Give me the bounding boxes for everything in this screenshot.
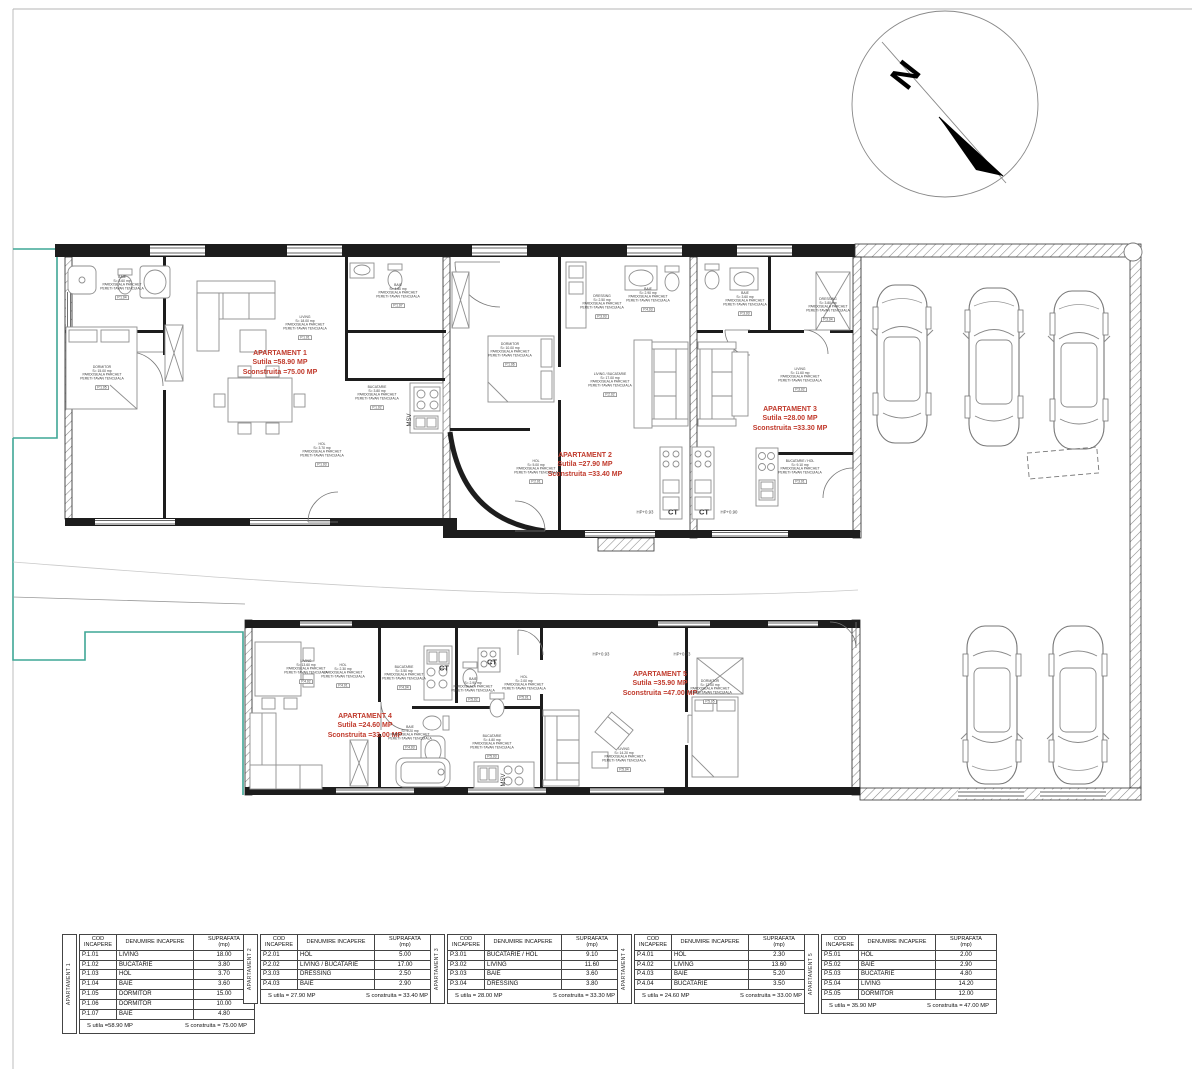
cell-cod: P.5.03 — [822, 970, 859, 980]
cell-denumire: BUCATARIE / HOL — [485, 950, 562, 960]
cell-denumire: LIVING — [672, 960, 749, 970]
cell-suprafata: 2.30 — [749, 950, 810, 960]
room-finish: PERETI-TAVAN TENCUIALA — [804, 309, 851, 313]
room-annotation: BAIES= 5.20 mpPARDOSEALA PARCHETPERETI-T… — [386, 726, 433, 750]
col-header-suprafata: SUPRAFATA(mp) — [562, 935, 623, 951]
apartment-name: APARTAMENT 4 — [328, 712, 403, 721]
table-row: P.1.05DORMITOR15.00 — [80, 990, 255, 1000]
col-header-denumire: DENUMIRE INCAPERE — [859, 935, 936, 951]
cell-suprafata: 2.50 — [375, 970, 436, 980]
apartment-1-label: APARTAMENT 1 Sutila =58.90 MP Sconstruit… — [243, 349, 318, 377]
cell-cod: P.3.03 — [261, 970, 298, 980]
room-finish: PERETI-TAVAN TENCUIALA — [686, 691, 733, 695]
area-table-apartment-1: APARTAMENT 1COD INCAPEREDENUMIRE INCAPER… — [62, 934, 255, 1034]
table-row: P.5.03BUCATARIE4.80 — [822, 970, 997, 980]
contour-lines — [13, 562, 858, 604]
cell-cod: P.3.03 — [448, 970, 485, 980]
room-annotation: LIVINGS= 11.60 mpPARDOSEALA PARCHETPERET… — [776, 368, 823, 392]
cell-suprafata: 5.20 — [749, 970, 810, 980]
room-annotation: LIVINGS= 14.20 mpPARDOSEALA PARCHETPERET… — [600, 748, 647, 772]
room-annotation: HOLS= 5.00 mpPARDOSEALA PARCHETPERETI-TA… — [512, 460, 559, 484]
equipment-tag-ct: CT — [699, 508, 709, 517]
room-code: P.5.02 — [466, 697, 480, 702]
table-row: P.4.03BAIE2.90 — [261, 980, 436, 990]
cell-cod: P.1.06 — [80, 1000, 117, 1010]
cell-denumire: DRESSING — [298, 970, 375, 980]
table-row: P.1.07BAIE4.80 — [80, 1009, 255, 1019]
total-utila: S utila = 24.60 MP — [642, 993, 690, 1000]
room-schedule-table: COD INCAPEREDENUMIRE INCAPERESUPRAFATA(m… — [821, 934, 997, 1014]
col-header-suprafata-unit: (mp) — [938, 942, 994, 948]
cell-cod: P.3.02 — [448, 960, 485, 970]
cell-cod: P.1.01 — [80, 950, 117, 960]
table-row: P.2.02LIVING / BUCATARIE17.00 — [261, 960, 436, 970]
table-row: P.1.04BAIE3.60 — [80, 980, 255, 990]
room-finish: PERETI-TAVAN TENCUIALA — [486, 354, 533, 358]
table-row: P.4.01HOL2.30 — [635, 950, 810, 960]
cell-suprafata: 2.90 — [936, 960, 997, 970]
cell-cod: P.1.03 — [80, 970, 117, 980]
room-annotation: BAIES= 4.80 mpPARDOSEALA PARCHETPERETI-T… — [374, 284, 421, 308]
cell-denumire: LIVING — [117, 950, 194, 960]
room-annotation: BUCATARIE / HOLS= 9.10 mpPARDOSEALA PARC… — [776, 460, 823, 484]
level-tag: HP+0.93 — [637, 511, 654, 515]
apartment-utila: Sutila =58.90 MP — [243, 358, 318, 367]
room-schedule-table: COD INCAPEREDENUMIRE INCAPERESUPRAFATA(m… — [260, 934, 436, 1004]
cell-suprafata: 12.00 — [936, 990, 997, 1000]
room-finish: PERETI-TAVAN TENCUIALA — [468, 746, 515, 750]
cell-suprafata: 2.90 — [375, 980, 436, 990]
room-code: P.4.03 — [641, 307, 655, 312]
table-row: P.4.02LIVING13.60 — [635, 960, 810, 970]
table-footer: S utila = 28.00 MPS construita = 33.30 M… — [450, 991, 620, 1002]
level-tag: HP+0.93 — [674, 653, 691, 657]
room-finish: PERETI-TAVAN TENCUIALA — [380, 677, 427, 681]
table-row: P.1.06DORMITOR10.00 — [80, 1000, 255, 1010]
apartment-name: APARTAMENT 2 — [548, 451, 623, 460]
room-schedule-table: COD INCAPEREDENUMIRE INCAPERESUPRAFATA(m… — [447, 934, 623, 1004]
apartment-name: APARTAMENT 5 — [623, 670, 698, 679]
room-finish: PERETI-TAVAN TENCUIALA — [98, 287, 145, 291]
table-row: P.5.04LIVING14.20 — [822, 980, 997, 990]
col-header-denumire: DENUMIRE INCAPERE — [485, 935, 562, 951]
cell-denumire: BAIE — [117, 1009, 194, 1019]
apartment-name: APARTAMENT 3 — [753, 405, 828, 414]
room-code: P.5.03 — [485, 754, 499, 759]
room-code: P.1.04 — [115, 295, 129, 300]
cell-suprafata: 5.00 — [375, 950, 436, 960]
cell-suprafata: 4.80 — [194, 1009, 255, 1019]
table-side-label-text: APARTAMENT 1 — [67, 963, 73, 1005]
equipment-tag-ct: CT — [439, 664, 449, 673]
cell-cod: P.4.03 — [635, 970, 672, 980]
room-code: P.5.01 — [517, 695, 531, 700]
room-finish: PERETI-TAVAN TENCUIALA — [776, 379, 823, 383]
col-header-denumire: DENUMIRE INCAPERE — [672, 935, 749, 951]
cell-denumire: BAIE — [485, 970, 562, 980]
table-footer: S utila =58.90 MPS construita = 75.00 MP — [82, 1021, 252, 1032]
level-tag: HP+0.93 — [593, 653, 610, 657]
cell-suprafata: 4.80 — [936, 970, 997, 980]
cell-cod: P.1.05 — [80, 990, 117, 1000]
room-code: P.1.03 — [315, 462, 329, 467]
cell-denumire: HOL — [117, 970, 194, 980]
equipment-tag-msv: MSV — [501, 773, 507, 786]
room-annotation: BUCATARIES= 3.80 mpPARDOSEALA PARCHETPER… — [353, 386, 400, 410]
cell-denumire: BUCATARIE — [117, 960, 194, 970]
apartment-construita: Sconstruita =75.00 MP — [243, 368, 318, 377]
cell-cod: P.4.02 — [635, 960, 672, 970]
room-finish: PERETI-TAVAN TENCUIALA — [500, 687, 547, 691]
total-construita: S construita = 33.00 MP — [740, 993, 802, 1000]
room-annotation: BAIES= 2.90 mpPARDOSEALA PARCHETPERETI-T… — [624, 288, 671, 312]
col-header-cod: COD INCAPERE — [80, 935, 117, 951]
room-annotation: DORMITORS= 15.00 mpPARDOSEALA PARCHETPER… — [78, 366, 125, 390]
room-finish: PERETI-TAVAN TENCUIALA — [353, 397, 400, 401]
room-finish: PERETI-TAVAN TENCUIALA — [578, 306, 625, 310]
cell-denumire: BUCATARIE — [672, 980, 749, 990]
table-row: P.3.03DRESSING2.50 — [261, 970, 436, 980]
cell-cod: P.4.01 — [635, 950, 672, 960]
cell-suprafata: 17.00 — [375, 960, 436, 970]
cell-denumire: DORMITOR — [117, 1000, 194, 1010]
col-header-denumire: DENUMIRE INCAPERE — [117, 935, 194, 951]
equipment-tag-ct: CT — [668, 508, 678, 517]
table-footer: S utila = 24.60 MPS construita = 33.00 M… — [637, 991, 807, 1002]
room-annotation: DORMITORS= 10.00 mpPARDOSEALA PARCHETPER… — [486, 343, 533, 367]
table-row: P.3.01BUCATARIE / HOL9.10 — [448, 950, 623, 960]
apartment-utila: Sutila =28.00 MP — [753, 414, 828, 423]
room-code: P.1.05 — [95, 385, 109, 390]
table-row: P.1.03HOL3.70 — [80, 970, 255, 980]
room-annotation: DRESSINGS= 3.80 mpPARDOSEALA PARCHETPERE… — [804, 298, 851, 322]
cell-cod: P.1.04 — [80, 980, 117, 990]
cell-denumire: DRESSING — [485, 980, 562, 990]
col-header-suprafata: SUPRAFATA(mp) — [749, 935, 810, 951]
cell-denumire: LIVING — [485, 960, 562, 970]
table-row: P.1.02BUCATARIE3.80 — [80, 960, 255, 970]
cell-suprafata: 3.50 — [749, 980, 810, 990]
room-code: P.1.01 — [298, 335, 312, 340]
cell-denumire: BUCATARIE — [859, 970, 936, 980]
col-header-cod: COD INCAPERE — [635, 935, 672, 951]
table-side-label-text: APARTAMENT 2 — [248, 948, 254, 990]
cell-suprafata: 3.80 — [562, 980, 623, 990]
room-finish: PERETI-TAVAN TENCUIALA — [624, 299, 671, 303]
room-code: P.1.02 — [370, 405, 384, 410]
level-tag: HP+0.90 — [721, 511, 738, 515]
reserved-spot-dashed — [1027, 447, 1099, 479]
cell-cod: P.4.03 — [261, 980, 298, 990]
total-utila: S utila = 28.00 MP — [455, 993, 503, 1000]
room-code: P.4.04 — [397, 685, 411, 690]
room-finish: PERETI-TAVAN TENCUIALA — [586, 384, 633, 388]
apartment-3-label: APARTAMENT 3 Sutila =28.00 MP Sconstruit… — [753, 405, 828, 433]
room-finish: PERETI-TAVAN TENCUIALA — [319, 675, 366, 679]
apartment-construita: Sconstruita =33.30 MP — [753, 424, 828, 433]
total-construita: S construita = 75.00 MP — [185, 1023, 247, 1030]
cell-denumire: BAIE — [117, 980, 194, 990]
room-annotation: BAIES= 3.60 mpPARDOSEALA PARCHETPERETI-T… — [98, 276, 145, 300]
room-finish: PERETI-TAVAN TENCUIALA — [386, 737, 433, 741]
cell-cod: P.5.01 — [822, 950, 859, 960]
cell-denumire: DORMITOR — [859, 990, 936, 1000]
cell-denumire: HOL — [298, 950, 375, 960]
room-finish: PERETI-TAVAN TENCUIALA — [298, 454, 345, 458]
table-row: P.3.03BAIE3.60 — [448, 970, 623, 980]
room-code: P.4.03 — [403, 745, 417, 750]
room-code: P.2.01 — [529, 479, 543, 484]
cell-denumire: DORMITOR — [117, 990, 194, 1000]
room-finish: PERETI-TAVAN TENCUIALA — [374, 295, 421, 299]
room-finish: PERETI-TAVAN TENCUIALA — [776, 471, 823, 475]
room-annotation: BUCATARIES= 3.50 mpPARDOSEALA PARCHETPER… — [380, 666, 427, 690]
total-utila: S utila = 35.90 MP — [829, 1003, 877, 1010]
room-code: P.2.02 — [603, 392, 617, 397]
total-construita: S construita = 33.30 MP — [553, 993, 615, 1000]
cell-cod: P.1.07 — [80, 1009, 117, 1019]
room-code: P.5.05 — [703, 699, 717, 704]
room-code: P.5.04 — [617, 767, 631, 772]
table-row: P.4.04BUCATARIE3.50 — [635, 980, 810, 990]
room-annotation: HOLS= 2.30 mpPARDOSEALA PARCHETPERETI-TA… — [319, 664, 366, 688]
room-code: P.1.07 — [391, 303, 405, 308]
cell-denumire: LIVING — [859, 980, 936, 990]
room-annotation: BUCATARIES= 4.80 mpPARDOSEALA PARCHETPER… — [468, 735, 515, 759]
cell-cod: P.1.02 — [80, 960, 117, 970]
cell-cod: P.2.02 — [261, 960, 298, 970]
room-code: P.3.03 — [595, 314, 609, 319]
table-row: P.5.02BAIE2.90 — [822, 960, 997, 970]
table-row: P.2.01HOL5.00 — [261, 950, 436, 960]
room-schedule-table: COD INCAPEREDENUMIRE INCAPERESUPRAFATA(m… — [79, 934, 255, 1034]
table-side-label: APARTAMENT 1 — [62, 934, 77, 1034]
room-code: P.3.03 — [738, 311, 752, 316]
room-annotation: LIVINGS= 18.00 mpPARDOSEALA PARCHETPERET… — [281, 316, 328, 340]
room-finish: PERETI-TAVAN TENCUIALA — [600, 759, 647, 763]
col-header-cod: COD INCAPERE — [822, 935, 859, 951]
apartment-name: APARTAMENT 1 — [243, 349, 318, 358]
col-header-cod: COD INCAPERE — [448, 935, 485, 951]
cell-denumire: BAIE — [672, 970, 749, 980]
table-side-label-text: APARTAMENT 3 — [435, 948, 441, 990]
total-construita: S construita = 33.40 MP — [366, 993, 428, 1000]
room-code: P.3.02 — [793, 387, 807, 392]
col-header-denumire: DENUMIRE INCAPERE — [298, 935, 375, 951]
room-annotation: BAIES= 3.60 mpPARDOSEALA PARCHETPERETI-T… — [721, 292, 768, 316]
table-row: P.5.01HOL2.00 — [822, 950, 997, 960]
cell-denumire: BAIE — [298, 980, 375, 990]
col-header-suprafata: SUPRAFATA(mp) — [936, 935, 997, 951]
cell-suprafata: 3.60 — [562, 970, 623, 980]
total-construita: S construita = 47.00 MP — [927, 1003, 989, 1010]
area-table-apartment-5: APARTAMENT 5COD INCAPEREDENUMIRE INCAPER… — [804, 934, 997, 1014]
room-annotation: BAIES= 2.90 mpPARDOSEALA PARCHETPERETI-T… — [449, 678, 496, 702]
room-annotation: LIVING / BUCATARIES= 17.00 mpPARDOSEALA … — [586, 373, 633, 397]
table-row: P.4.03BAIE5.20 — [635, 970, 810, 980]
area-table-apartment-4: APARTAMENT 4COD INCAPEREDENUMIRE INCAPER… — [617, 934, 810, 1004]
cell-denumire: BAIE — [859, 960, 936, 970]
cell-suprafata: 14.20 — [936, 980, 997, 990]
table-side-label-text: APARTAMENT 5 — [809, 953, 815, 995]
room-schedule-table: COD INCAPEREDENUMIRE INCAPERESUPRAFATA(m… — [634, 934, 810, 1004]
cell-cod: P.4.04 — [635, 980, 672, 990]
table-footer: S utila = 35.90 MPS construita = 47.00 M… — [824, 1001, 994, 1012]
cell-cod: P.3.01 — [448, 950, 485, 960]
room-code: P.1.06 — [503, 362, 517, 367]
room-finish: PERETI-TAVAN TENCUIALA — [512, 471, 559, 475]
cell-suprafata: 11.60 — [562, 960, 623, 970]
cell-cod: P.3.04 — [448, 980, 485, 990]
room-annotation: HOLS= 2.00 mpPARDOSEALA PARCHETPERETI-TA… — [500, 676, 547, 700]
cell-suprafata: 13.60 — [749, 960, 810, 970]
table-row: P.3.02LIVING11.60 — [448, 960, 623, 970]
equipment-tag-ct: CT — [487, 658, 497, 667]
cell-cod: P.5.02 — [822, 960, 859, 970]
floor-plan-drawing — [0, 0, 1200, 1072]
col-header-suprafata-unit: (mp) — [564, 942, 620, 948]
room-annotation: DORMITORS= 12.00 mpPARDOSEALA PARCHETPER… — [686, 680, 733, 704]
room-annotation: DRESSINGS= 2.50 mpPARDOSEALA PARCHETPERE… — [578, 295, 625, 319]
room-code: P.3.01 — [793, 479, 807, 484]
col-header-suprafata-unit: (mp) — [751, 942, 807, 948]
room-finish: PERETI-TAVAN TENCUIALA — [721, 303, 768, 307]
room-finish: PERETI-TAVAN TENCUIALA — [78, 377, 125, 381]
table-row: P.5.05DORMITOR12.00 — [822, 990, 997, 1000]
col-header-cod: COD INCAPERE — [261, 935, 298, 951]
table-side-label: APARTAMENT 4 — [617, 934, 632, 1004]
site-plan-sheet: N APARTAMENT 1 Sutila =58.90 MP Sconstru… — [0, 0, 1200, 1072]
cell-denumire: HOL — [672, 950, 749, 960]
cell-denumire: LIVING / BUCATARIE — [298, 960, 375, 970]
cell-suprafata: 2.00 — [936, 950, 997, 960]
room-code: P.3.04 — [821, 317, 835, 322]
total-utila: S utila =58.90 MP — [87, 1023, 133, 1030]
table-row: P.1.01LIVING18.00 — [80, 950, 255, 960]
room-code: P.4.01 — [336, 683, 350, 688]
room-annotation: HOLS= 3.70 mpPARDOSEALA PARCHETPERETI-TA… — [298, 443, 345, 467]
table-side-label: APARTAMENT 2 — [243, 934, 258, 1004]
north-arrow — [852, 11, 1038, 197]
table-side-label: APARTAMENT 5 — [804, 934, 819, 1014]
table-row: P.3.04DRESSING3.80 — [448, 980, 623, 990]
room-finish: PERETI-TAVAN TENCUIALA — [281, 327, 328, 331]
room-finish: PERETI-TAVAN TENCUIALA — [449, 689, 496, 693]
col-header-suprafata: SUPRAFATA(mp) — [375, 935, 436, 951]
total-utila: S utila = 27.90 MP — [268, 993, 316, 1000]
equipment-tag-msv: MSV — [407, 413, 413, 426]
cell-cod: P.5.05 — [822, 990, 859, 1000]
table-side-label: APARTAMENT 3 — [430, 934, 445, 1004]
col-header-suprafata-unit: (mp) — [377, 942, 433, 948]
cell-cod: P.5.04 — [822, 980, 859, 990]
cell-denumire: HOL — [859, 950, 936, 960]
area-table-apartment-3: APARTAMENT 3COD INCAPEREDENUMIRE INCAPER… — [430, 934, 623, 1004]
cell-cod: P.2.01 — [261, 950, 298, 960]
parking-cars — [871, 285, 1110, 784]
area-table-apartment-2: APARTAMENT 2COD INCAPEREDENUMIRE INCAPER… — [243, 934, 436, 1004]
room-code: P.4.02 — [299, 679, 313, 684]
table-footer: S utila = 27.90 MPS construita = 33.40 M… — [263, 991, 433, 1002]
table-side-label-text: APARTAMENT 4 — [622, 948, 628, 990]
cell-suprafata: 9.10 — [562, 950, 623, 960]
